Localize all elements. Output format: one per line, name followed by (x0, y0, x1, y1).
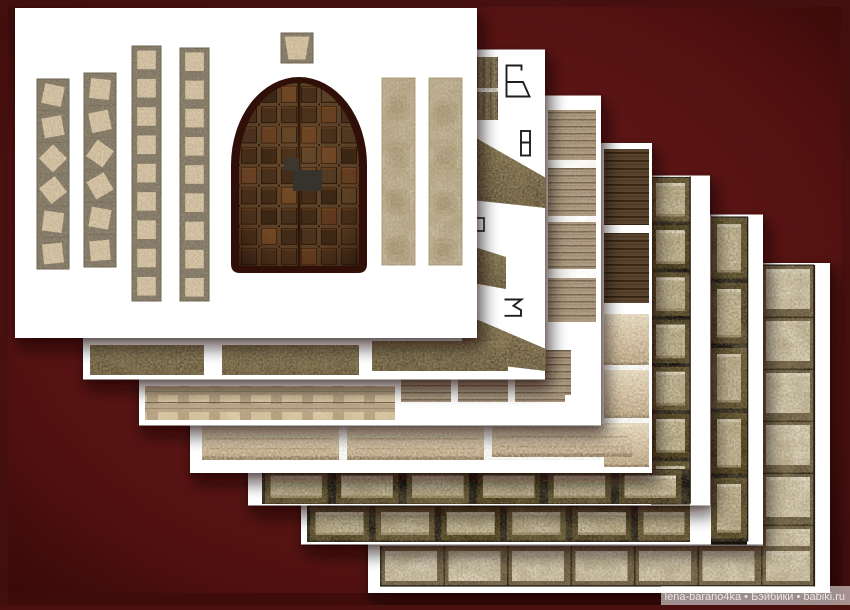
svg-text:lena-barano4ka • Бэйбики • bab: lena-barano4ka • Бэйбики • babiki.ru (665, 591, 845, 603)
